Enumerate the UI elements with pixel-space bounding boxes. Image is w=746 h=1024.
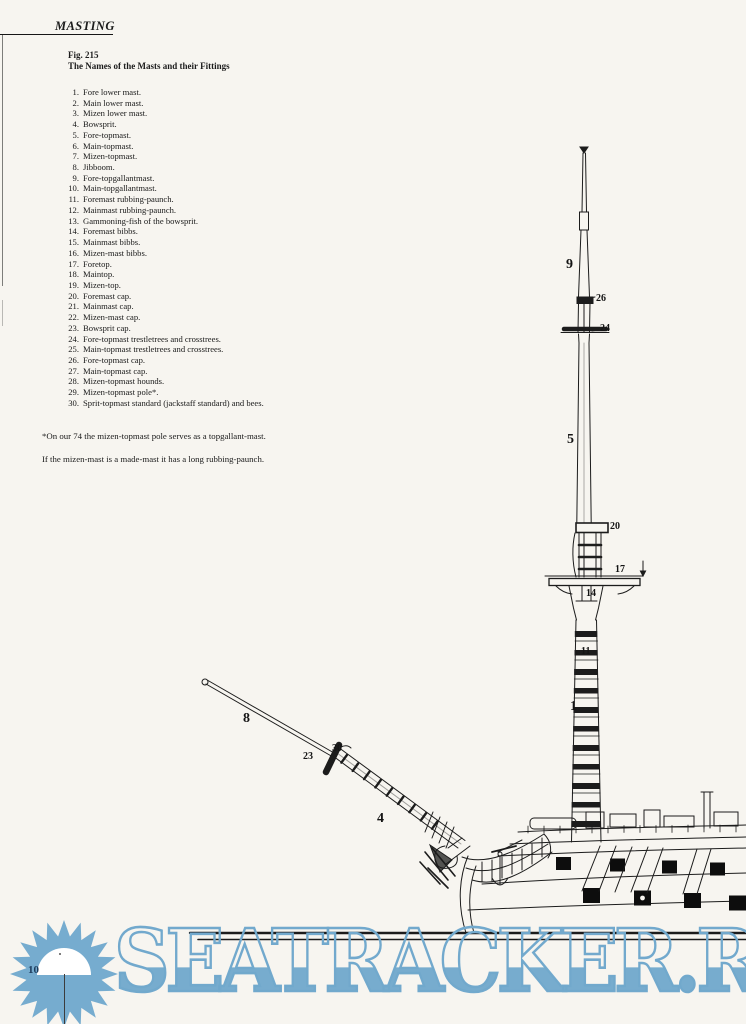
anchor bbox=[492, 856, 508, 885]
foremast-bibbs bbox=[569, 586, 603, 620]
hull bbox=[468, 792, 746, 911]
fore-topgallantmast bbox=[579, 147, 590, 297]
ship-line-drawing bbox=[0, 0, 746, 1024]
page-number: 10 bbox=[28, 964, 39, 976]
waterline bbox=[190, 933, 746, 940]
topmast-crosstrees bbox=[561, 329, 609, 343]
jibboom bbox=[202, 679, 335, 757]
sun-stick bbox=[64, 974, 66, 1024]
fore-lower-mast bbox=[571, 620, 601, 842]
gammoning bbox=[425, 812, 454, 848]
bowsprit-cap bbox=[326, 745, 351, 772]
fore-topmast bbox=[577, 343, 591, 523]
lower-masthead bbox=[573, 533, 601, 577]
bowsprit bbox=[333, 749, 465, 849]
foretop-platform bbox=[545, 561, 646, 594]
shrouds bbox=[582, 846, 711, 894]
book-page: MASTING Fig. 215 The Names of the Masts … bbox=[0, 0, 746, 1024]
foremast-cap bbox=[576, 523, 608, 533]
fore-topmast-cap bbox=[577, 297, 595, 304]
